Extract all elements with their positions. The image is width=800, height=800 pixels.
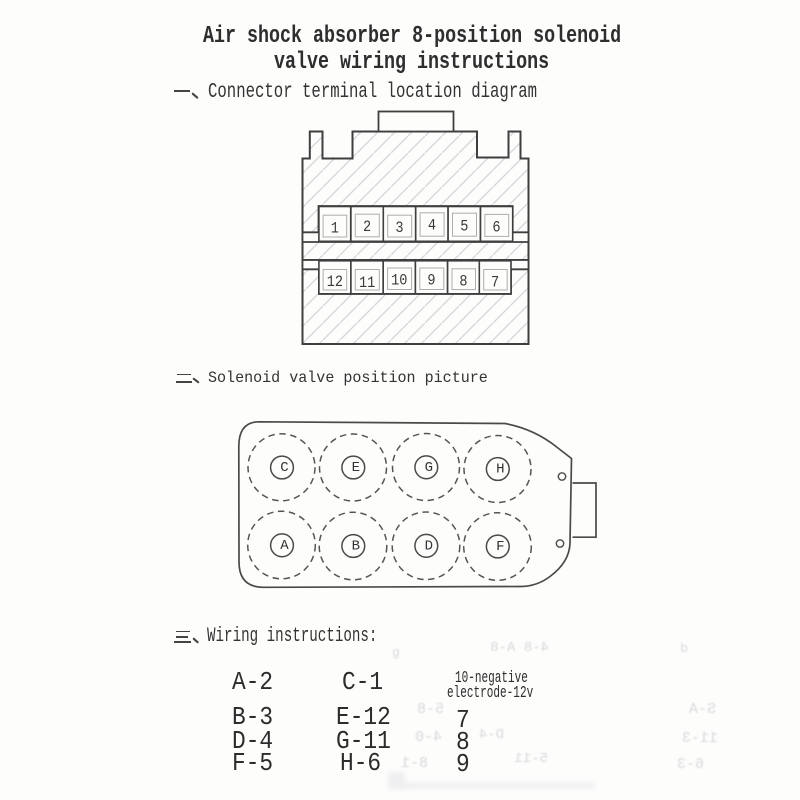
svg-text:6: 6 [492, 220, 500, 237]
svg-text:E: E [352, 460, 360, 476]
svg-text:2: 2 [363, 219, 371, 236]
svg-text:12: 12 [327, 274, 343, 291]
svg-text:11: 11 [359, 275, 375, 292]
svg-text:F: F [496, 539, 504, 555]
svg-text:9: 9 [427, 273, 435, 290]
svg-text:10: 10 [391, 273, 407, 290]
svg-text:G: G [425, 460, 433, 476]
svg-text:3: 3 [395, 220, 403, 237]
svg-text:8: 8 [459, 274, 467, 291]
svg-text:5: 5 [460, 219, 468, 236]
svg-text:4: 4 [428, 218, 436, 235]
svg-text:A: A [280, 538, 289, 554]
svg-text:D: D [425, 538, 433, 554]
svg-text:1: 1 [331, 220, 339, 237]
svg-text:B: B [352, 539, 360, 555]
svg-text:7: 7 [491, 275, 499, 292]
svg-text:H: H [496, 462, 504, 478]
svg-text:C: C [280, 460, 288, 476]
